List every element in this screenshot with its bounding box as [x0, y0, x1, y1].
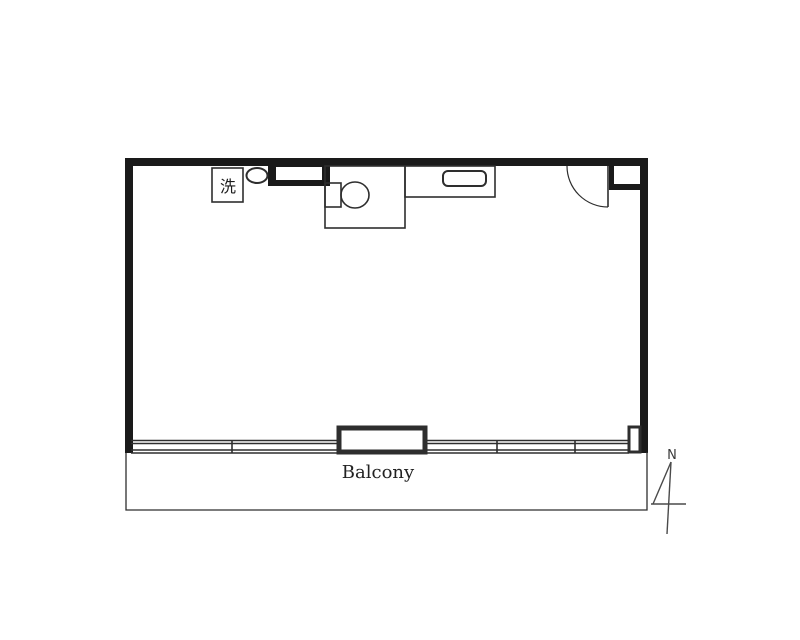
meter-box-wall-bottom [609, 184, 640, 190]
kitchen-sink [443, 171, 486, 186]
window-band-left [131, 440, 339, 453]
toilet-bowl [341, 182, 369, 208]
floor-plan-page: 洗 Balcony N [0, 0, 800, 640]
balcony-label: Balcony [342, 462, 415, 483]
left-wall [125, 158, 133, 453]
right-wall [640, 158, 648, 453]
washing-machine-label: 洗 [220, 177, 236, 196]
toilet-room [325, 166, 405, 228]
door-swing-arc [567, 166, 608, 207]
window-band-right [425, 440, 629, 453]
toilet-tank [325, 183, 341, 207]
top-wall [125, 158, 648, 166]
wall-window-pane [276, 167, 322, 180]
wash-basin [247, 168, 268, 183]
north-arrow [651, 462, 686, 534]
floor-plan-drawing: 洗 Balcony N [0, 0, 800, 640]
north-label: N [667, 448, 677, 463]
corner-pillar [629, 427, 640, 452]
outer-walls [125, 158, 648, 453]
bay-window [339, 428, 425, 452]
